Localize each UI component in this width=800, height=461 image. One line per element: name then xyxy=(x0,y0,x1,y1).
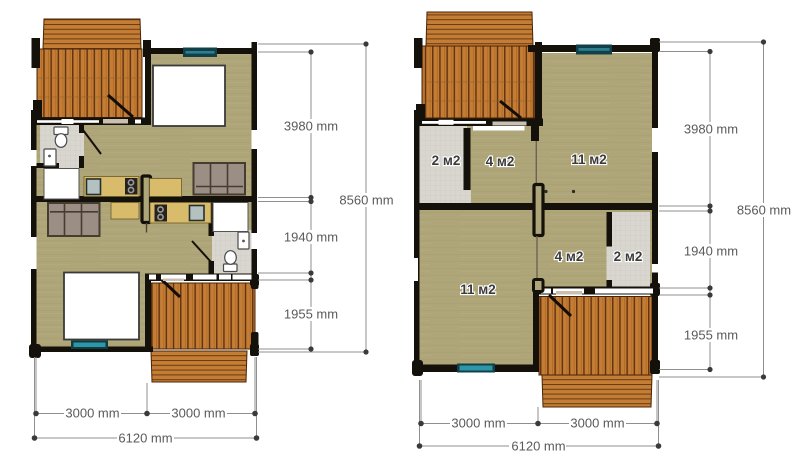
svg-text:3000 mm: 3000 mm xyxy=(570,416,624,431)
svg-text:3980 mm: 3980 mm xyxy=(684,122,738,137)
svg-text:1940 mm: 1940 mm xyxy=(684,244,738,259)
svg-text:8560 mm: 8560 mm xyxy=(737,203,791,218)
svg-text:3000 mm: 3000 mm xyxy=(65,406,119,421)
svg-text:6120 mm: 6120 mm xyxy=(118,431,172,446)
svg-text:1955 mm: 1955 mm xyxy=(684,328,738,343)
svg-text:2 м2: 2 м2 xyxy=(614,249,643,264)
svg-text:3000 mm: 3000 mm xyxy=(451,416,505,431)
svg-text:11 м2: 11 м2 xyxy=(571,152,607,167)
svg-text:8560 mm: 8560 mm xyxy=(339,193,393,208)
svg-text:4 м2: 4 м2 xyxy=(555,249,584,264)
svg-text:4 м2: 4 м2 xyxy=(486,154,515,169)
svg-text:3000 mm: 3000 mm xyxy=(171,406,225,421)
svg-text:3980 mm: 3980 mm xyxy=(284,119,338,134)
svg-text:1955 mm: 1955 mm xyxy=(284,307,338,322)
svg-text:11 м2: 11 м2 xyxy=(460,282,496,297)
svg-text:2 м2: 2 м2 xyxy=(432,153,461,168)
svg-text:6120 mm: 6120 mm xyxy=(511,439,565,454)
svg-text:1940 mm: 1940 mm xyxy=(284,230,338,245)
